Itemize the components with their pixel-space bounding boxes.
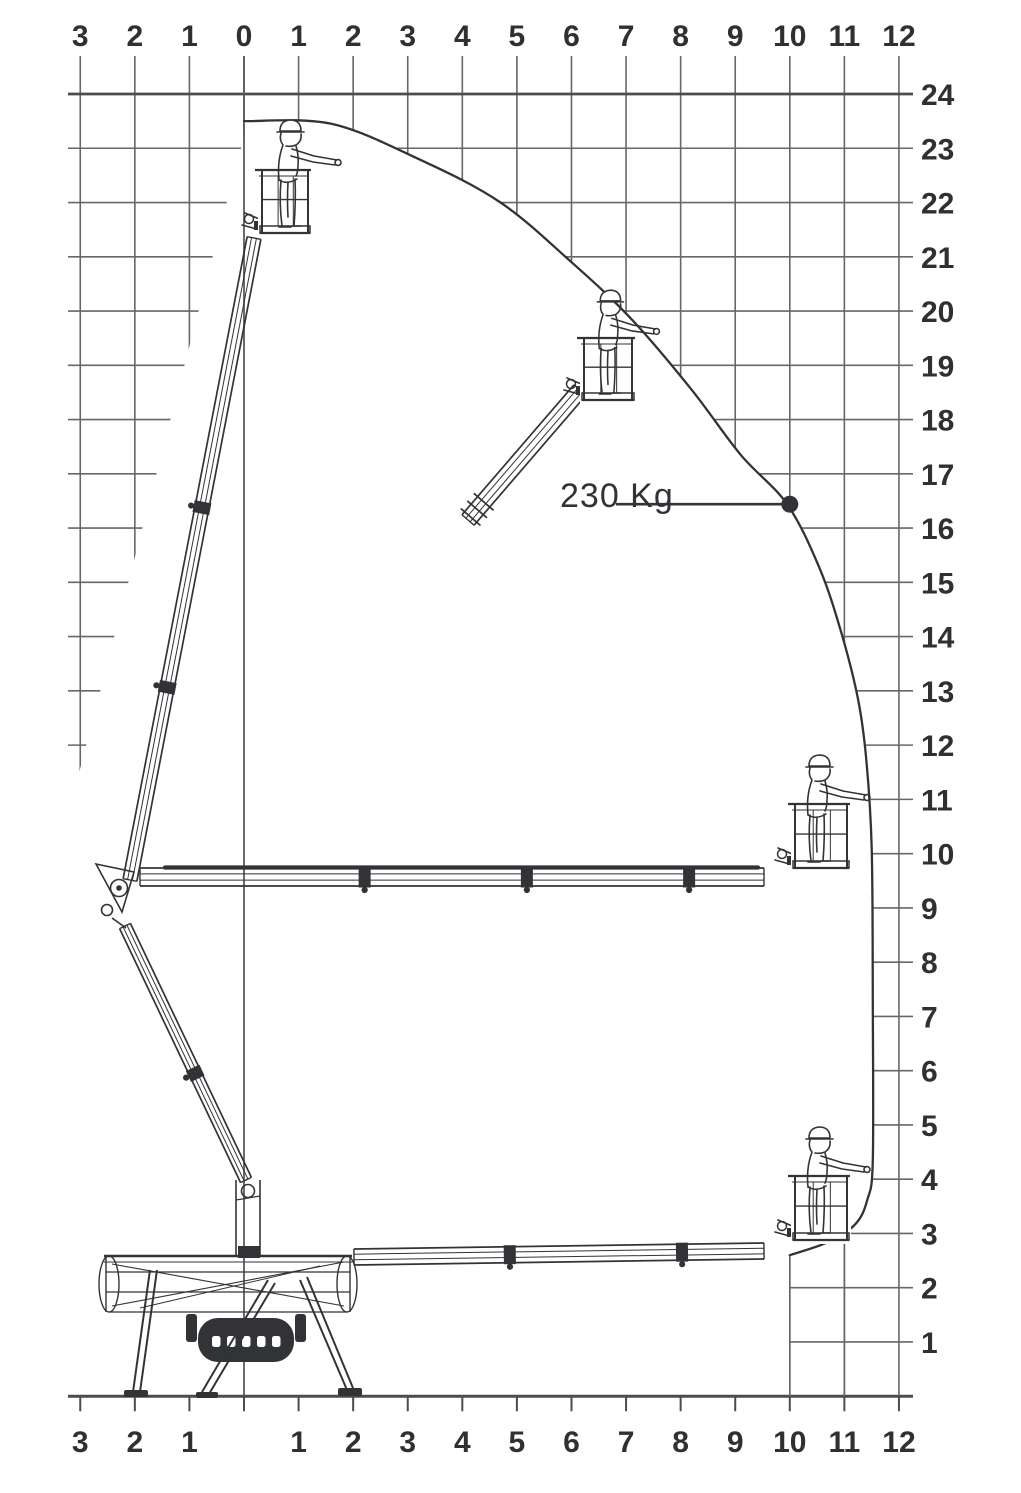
x-axis-tick-label-top: 1 [290,20,307,53]
y-axis-tick-label: 17 [921,459,954,492]
y-axis-tick-label: 23 [921,133,954,166]
y-axis-tick-label: 13 [921,676,954,709]
load-label: 230 Kg [560,477,674,515]
y-axis-tick-label: 4 [921,1164,938,1197]
x-axis-tick-label-bottom: 10 [773,1426,806,1459]
y-axis-tick-label: 22 [921,188,954,221]
y-axis-tick-label: 20 [921,296,954,329]
hard-hat-icon [600,290,620,301]
hard-hat-icon [280,120,301,131]
x-axis-tick-label-bottom: 3 [72,1426,89,1459]
x-axis-tick-label-top: 0 [236,20,253,53]
x-axis-tick-label-top: 4 [454,20,471,53]
y-axis-tick-label: 24 [921,79,955,112]
x-axis-tick-label-bottom: 2 [126,1426,143,1459]
x-axis-tick-label-top: 1 [181,20,198,53]
hard-hat-icon [809,755,830,766]
y-axis-tick-label: 1 [921,1327,938,1360]
x-axis-tick-label-top: 5 [509,20,526,53]
x-axis-tick-label-bottom: 9 [727,1426,744,1459]
x-axis-tick-label-bottom: 1 [181,1426,198,1459]
x-axis-tick-label-bottom: 4 [454,1426,471,1459]
x-axis-tick-label-bottom: 8 [672,1426,689,1459]
y-axis-tick-label: 18 [921,405,954,438]
y-axis-tick-label: 2 [921,1273,938,1306]
y-axis-tick-label: 11 [921,784,953,817]
y-axis-tick-label: 16 [921,513,954,546]
x-axis-tick-label-top: 8 [672,20,689,53]
y-axis-tick-label: 21 [921,242,954,275]
x-axis-tick-label-top: 10 [773,20,806,53]
load-point-marker [781,496,798,513]
x-axis-tick-label-bottom: 7 [618,1426,635,1459]
x-axis-tick-label-top: 2 [345,20,362,53]
x-axis-tick-label-bottom: 6 [563,1426,580,1459]
x-axis-tick-label-top: 12 [882,20,915,53]
hard-hat-icon [809,1127,830,1138]
x-axis-tick-label-top: 3 [399,20,416,53]
y-axis-tick-label: 8 [921,947,938,980]
y-axis-tick-label: 3 [921,1218,938,1251]
y-axis-tick-label: 5 [921,1110,938,1143]
x-axis-tick-label-bottom: 12 [882,1426,915,1459]
x-axis-tick-label-bottom: 1 [290,1426,307,1459]
y-axis-tick-label: 9 [921,893,938,926]
y-axis-tick-label: 7 [921,1001,938,1034]
y-axis-tick-label: 10 [921,839,954,872]
y-axis-tick-label: 6 [921,1056,938,1089]
y-axis-tick-label: 15 [921,567,954,600]
x-axis-tick-label-bottom: 5 [509,1426,526,1459]
x-axis-tick-label-bottom: 2 [345,1426,362,1459]
y-axis-tick-label: 14 [921,622,955,655]
x-axis-tick-label-top: 7 [618,20,635,53]
x-axis-tick-label-bottom: 11 [829,1426,861,1459]
x-axis-tick-label-top: 2 [126,20,143,53]
y-axis-tick-label: 19 [921,350,954,383]
diagram-page: 230 Kg 321012345678910111232112345678910… [0,0,1021,1493]
x-axis-tick-label-top: 9 [727,20,744,53]
x-axis-tick-label-top: 3 [72,20,89,53]
x-axis-tick-label-top: 11 [829,20,861,53]
y-axis-tick-label: 12 [921,730,954,763]
x-axis-tick-label-top: 6 [563,20,580,53]
x-axis-tick-label-bottom: 3 [399,1426,416,1459]
working-envelope-diagram: 230 Kg 321012345678910111232112345678910… [0,0,1021,1493]
